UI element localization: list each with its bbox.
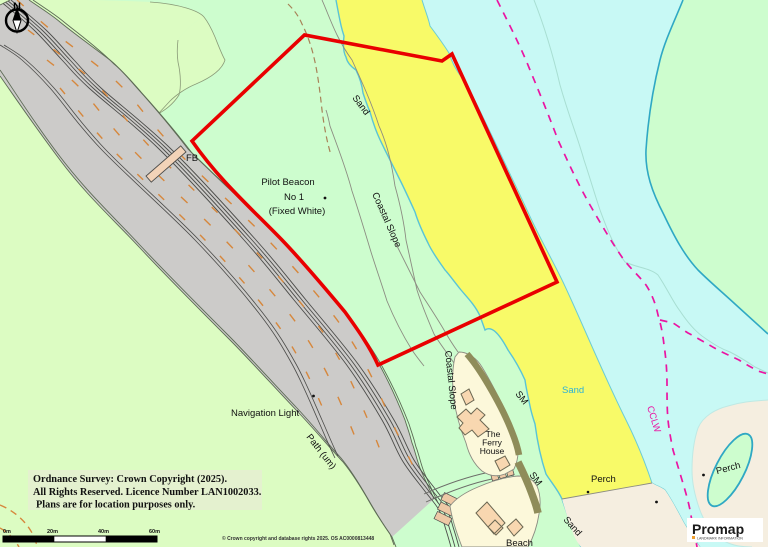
svg-text:Beach: Beach	[506, 538, 533, 547]
svg-text:House: House	[480, 446, 505, 456]
svg-text:Plans are for location purpose: Plans are for location purposes only.	[36, 500, 196, 511]
svg-text:Ordnance Survey: Crown Copyrig: Ordnance Survey: Crown Copyright (2025).	[33, 474, 227, 485]
svg-text:20m: 20m	[47, 529, 58, 535]
svg-text:© Crown copyright and database: © Crown copyright and database rights 20…	[222, 535, 374, 542]
svg-text:60m: 60m	[149, 529, 160, 535]
svg-text:0m: 0m	[3, 529, 11, 535]
svg-text:All Rights Reserved. Licence N: All Rights Reserved. Licence Number LAN1…	[33, 487, 262, 498]
svg-text:Pilot Beacon: Pilot Beacon	[261, 177, 314, 188]
svg-text:Promap: Promap	[692, 521, 744, 537]
svg-text:Navigation Light: Navigation Light	[231, 408, 299, 419]
svg-text:40m: 40m	[98, 529, 109, 535]
svg-text:LANDMARK INFORMATION: LANDMARK INFORMATION	[697, 537, 743, 541]
svg-text:N: N	[13, 1, 21, 13]
svg-text:No 1: No 1	[284, 192, 304, 203]
svg-text:Perch: Perch	[591, 474, 616, 485]
svg-text:FB: FB	[186, 153, 198, 164]
svg-text:Sand: Sand	[562, 385, 584, 396]
svg-text:(Fixed White): (Fixed White)	[269, 206, 325, 217]
